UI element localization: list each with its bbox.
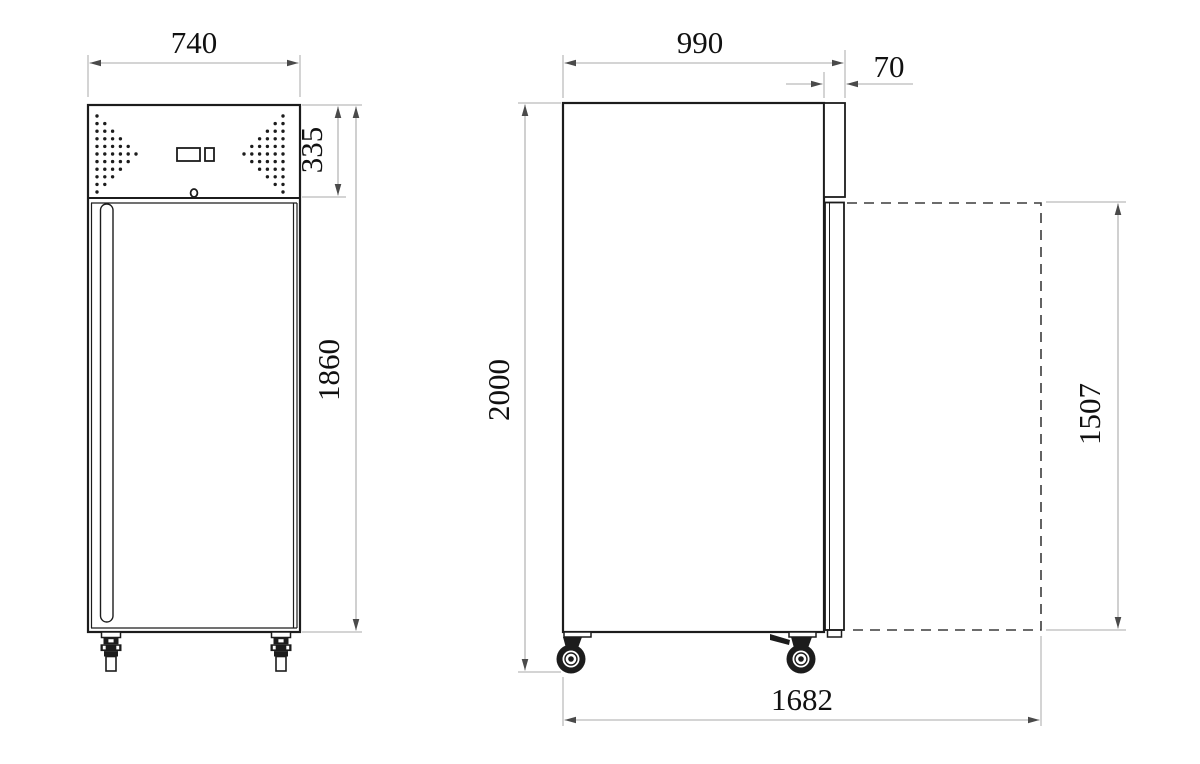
side-door-foot [828, 630, 842, 637]
dim-overall-height: 2000 [481, 103, 561, 672]
side-rear-caster [770, 632, 816, 674]
front-right-caster [271, 632, 292, 671]
door-handle [101, 204, 114, 622]
dim-top-panel-height: 335 [294, 105, 362, 197]
dim-front-width: 740 [88, 25, 300, 97]
dim-door-thickness: 70 [786, 49, 913, 98]
dim-label-side-depth: 990 [677, 25, 724, 60]
dim-cabinet-height: 1860 [302, 107, 362, 633]
dim-label-cabinet-height: 1860 [311, 339, 346, 401]
side-cabinet-outline [563, 103, 824, 632]
technical-drawing-canvas: 740 335 1860 [0, 0, 1200, 764]
side-door [825, 203, 844, 638]
front-cabinet-outline [88, 105, 300, 632]
front-view: 740 335 1860 [88, 25, 362, 671]
dim-label-overall-depth-door-open: 1682 [771, 682, 833, 717]
caster-brake-lever [770, 634, 790, 645]
open-door-outline [846, 203, 1041, 630]
dim-label-door-thickness: 70 [874, 49, 905, 84]
side-top-panel [824, 103, 845, 197]
dim-side-depth: 990 [563, 25, 845, 98]
side-view: 990 70 2000 1507 1682 [481, 25, 1126, 726]
dim-label-overall-height: 2000 [481, 359, 516, 421]
front-left-caster [101, 632, 122, 671]
dim-label-open-door-height: 1507 [1072, 383, 1107, 445]
dim-label-front-width: 740 [171, 25, 218, 60]
dim-label-top-panel-height: 335 [294, 127, 329, 174]
side-front-caster [557, 632, 592, 674]
dim-open-door-height: 1507 [1046, 202, 1126, 630]
